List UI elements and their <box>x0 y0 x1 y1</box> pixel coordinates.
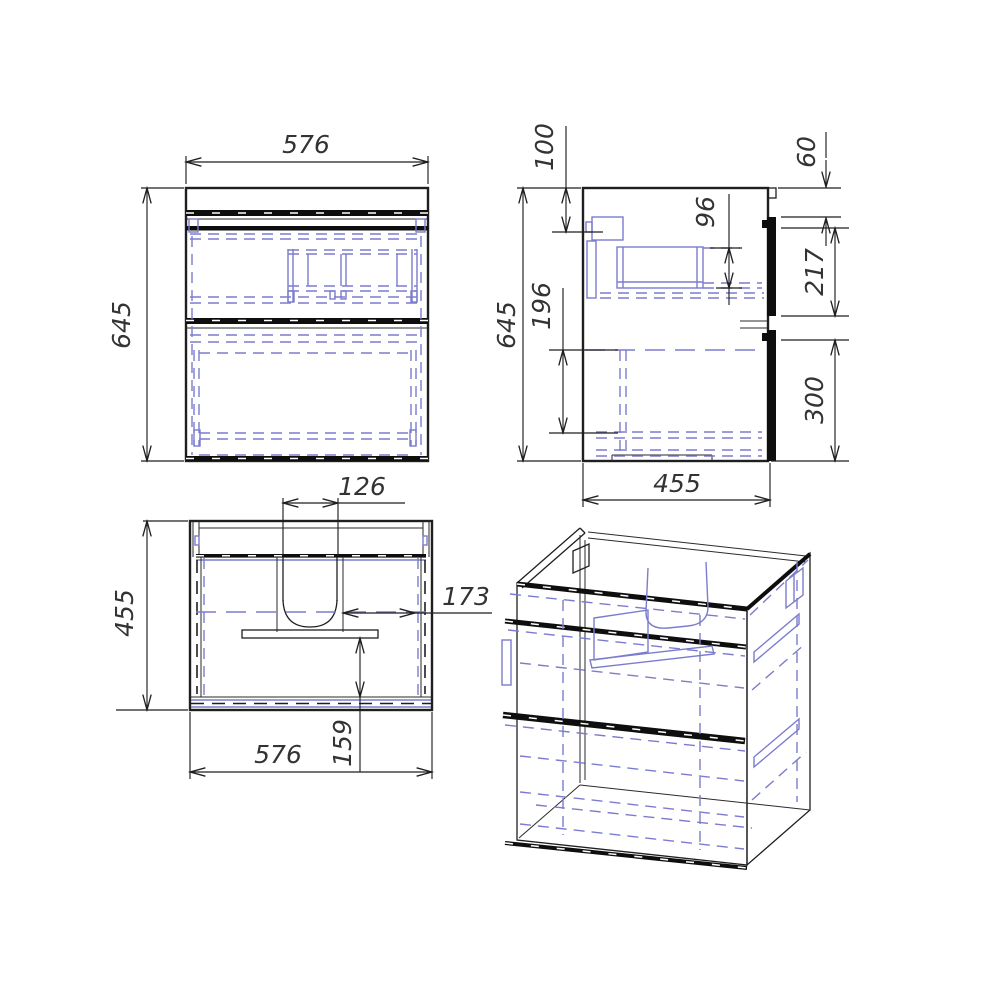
plan-view-outline <box>190 521 432 710</box>
dim-plan-offset-right-label: 173 <box>442 582 490 611</box>
dim-plan-width-label: 576 <box>254 740 302 769</box>
plan-view: 126 173 159 576 455 <box>110 472 492 779</box>
dim-side-upper-front-label: 217 <box>800 248 829 296</box>
side-view: 645 455 100 96 196 <box>492 123 849 507</box>
dim-side-upper-front: 217 <box>781 228 849 316</box>
dim-side-lower-box: 196 <box>527 282 618 433</box>
iso-carcass-outline <box>517 528 810 865</box>
dim-side-lower-box-label: 196 <box>527 282 556 330</box>
dim-front-height-label: 645 <box>107 301 136 349</box>
dim-side-drawer-box-label: 96 <box>691 196 720 228</box>
dim-side-top-gap-label: 60 <box>792 136 821 168</box>
dim-plan-depth: 455 <box>110 521 188 710</box>
dim-front-width: 576 <box>186 130 428 184</box>
side-view-outline <box>583 188 776 461</box>
dim-plan-depth-label: 455 <box>110 589 139 637</box>
dim-front-height: 645 <box>107 188 184 461</box>
dim-front-width-label: 576 <box>282 130 330 159</box>
dim-side-lower-front-label: 300 <box>800 376 829 424</box>
dim-plan-width: 576 <box>190 712 432 779</box>
dim-side-lower-front: 300 <box>771 340 849 461</box>
dim-plan-cutout: 126 <box>283 472 405 556</box>
iso-hidden-details <box>502 560 808 850</box>
front-view: 576 645 <box>107 130 428 461</box>
dim-plan-offset-front: 159 <box>328 638 360 772</box>
side-view-hidden-details <box>585 217 764 456</box>
front-view-hidden-details <box>189 219 425 455</box>
dim-side-top-offset: 100 <box>530 123 603 232</box>
dim-plan-cutout-label: 126 <box>338 472 386 501</box>
technical-drawing-page: 576 645 <box>0 0 1000 1000</box>
front-view-outline <box>186 188 428 461</box>
dim-plan-offset-front-label: 159 <box>328 719 357 767</box>
drawing-canvas: 576 645 <box>0 0 1000 1000</box>
dim-side-top-gap: 60 <box>778 132 841 246</box>
dim-side-height-label: 645 <box>492 301 521 349</box>
dim-side-top-offset-label: 100 <box>530 123 559 171</box>
dim-side-depth: 455 <box>583 463 770 507</box>
isometric-view <box>502 528 810 868</box>
dim-side-depth-label: 455 <box>653 469 701 498</box>
